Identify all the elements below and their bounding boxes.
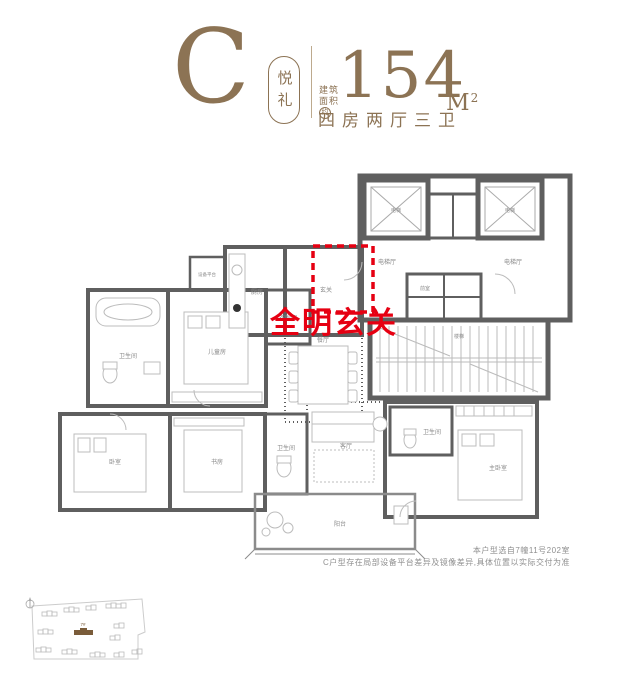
room-label-bedroom2: 卧室 <box>109 458 121 466</box>
disclaimer-line2: C户型存在局部设备平台差异及镜像差异,具体位置以实际交付为准 <box>323 557 570 569</box>
series-badge-label: 悦礼 <box>277 66 292 114</box>
room-bath2 <box>265 414 307 494</box>
room-label-hall-right: 电梯厅 <box>504 258 522 266</box>
room-label-bath1: 卫生间 <box>119 352 137 360</box>
site-building-highlighted-label: 7# <box>80 622 86 627</box>
header-divider <box>311 46 312 118</box>
disclaimer: 本户型选自7幢11号202室 C户型存在局部设备平台差异及镜像差异,具体位置以实… <box>323 545 570 569</box>
room-label-hall-left: 电梯厅 <box>378 258 396 266</box>
room-label-study: 书房 <box>211 458 223 466</box>
room-label-elevator1: 电梯 <box>391 207 401 214</box>
room-label-bath2: 卫生间 <box>277 444 295 452</box>
room-label-kitchen: 厨房 <box>251 288 263 296</box>
room-label-bath3: 卫生间 <box>423 428 441 436</box>
room-label-living: 客厅 <box>340 442 352 450</box>
room-label-master: 主卧室 <box>489 464 507 472</box>
entry-highlight-text: 全明玄关 <box>270 298 398 342</box>
room-label-kids: 儿童房 <box>208 348 226 356</box>
series-badge: 悦礼 <box>268 56 300 124</box>
room-label-entry: 玄关 <box>320 286 332 294</box>
unit-type-letter: C <box>172 14 272 134</box>
site-boundary <box>32 599 145 659</box>
room-label-equipment: 设备平台 <box>198 271 216 278</box>
room-label-stairs: 楼梯 <box>454 333 464 340</box>
floor-plan: 卫生间 儿童房 衣帽间 设备平台 厨房 玄关 餐厅 卧室 书房 卫生间 客厅 阳… <box>50 162 590 565</box>
site-plan: 7# <box>22 592 157 677</box>
disclaimer-line1: 本户型选自7幢11号202室 <box>323 545 570 557</box>
layout-description: 四房两厅三卫 <box>318 106 462 131</box>
site-building-highlighted: 7# <box>74 622 93 635</box>
room-label-front: 前室 <box>420 285 430 292</box>
floor-plan-drawing: 卫生间 儿童房 衣帽间 设备平台 厨房 玄关 餐厅 卧室 书房 卫生间 客厅 阳… <box>50 162 590 560</box>
north-compass-icon <box>26 597 34 608</box>
room-label-elevator2: 电梯 <box>505 207 515 214</box>
site-plan-drawing: 7# <box>22 592 157 672</box>
room-bath3 <box>390 407 452 455</box>
room-label-balcony: 阳台 <box>334 520 346 528</box>
